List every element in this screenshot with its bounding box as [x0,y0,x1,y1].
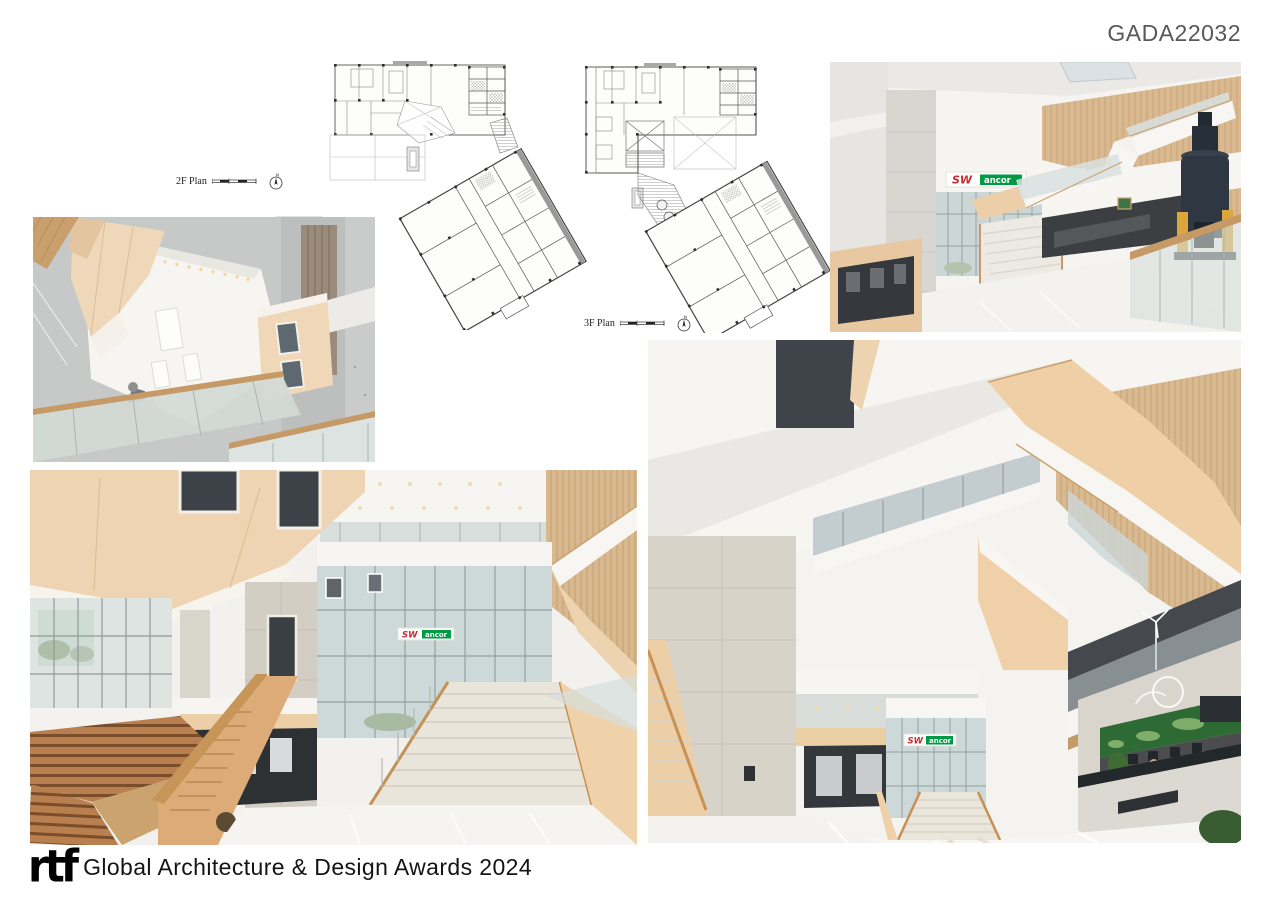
awards-title: Global Architecture & Design Awards 2024 [83,854,532,881]
svg-text:ancor: ancor [425,631,448,639]
framed-artwork [1118,198,1131,209]
photo-atrium-looking-up [33,217,375,462]
marble-floor [218,805,637,845]
swancor-sign: SW ancor [398,628,454,641]
framed-artwork [368,574,382,592]
footer: rtf Global Architecture & Design Awards … [28,846,532,888]
svg-text:SW: SW [908,737,924,747]
swancor-sign: SW ancor [904,734,956,747]
photo-grand-stair-hall: SW ancor [30,470,637,845]
svg-text:ancor: ancor [984,176,1012,186]
framed-artwork [326,578,342,598]
rtf-logo: rtf [28,845,75,889]
plan-2f-label: 2F Plan [176,176,207,187]
wall-screen [1200,696,1241,722]
ortho-wing [330,61,518,180]
presentation-board: GADA22032 2F Plan N [0,0,1273,900]
entry-code: GADA22032 [1107,20,1241,47]
photo-lobby-reception: SW ancor [648,340,1241,843]
high-window [776,340,854,428]
swancor-sign: SW ancor [946,172,1026,187]
skylight [1060,62,1136,82]
svg-text:SW: SW [952,174,973,187]
pillar-window [268,616,296,680]
floor-plan-3f [578,55,840,333]
svg-text:SW: SW [402,631,418,641]
rotated-wing [399,148,592,330]
curtain-wall [30,598,172,734]
svg-text:ancor: ancor [929,737,952,745]
wall-panel-box [744,766,755,781]
photo-atrium-stair-exhibit: SW ancor [830,62,1241,332]
